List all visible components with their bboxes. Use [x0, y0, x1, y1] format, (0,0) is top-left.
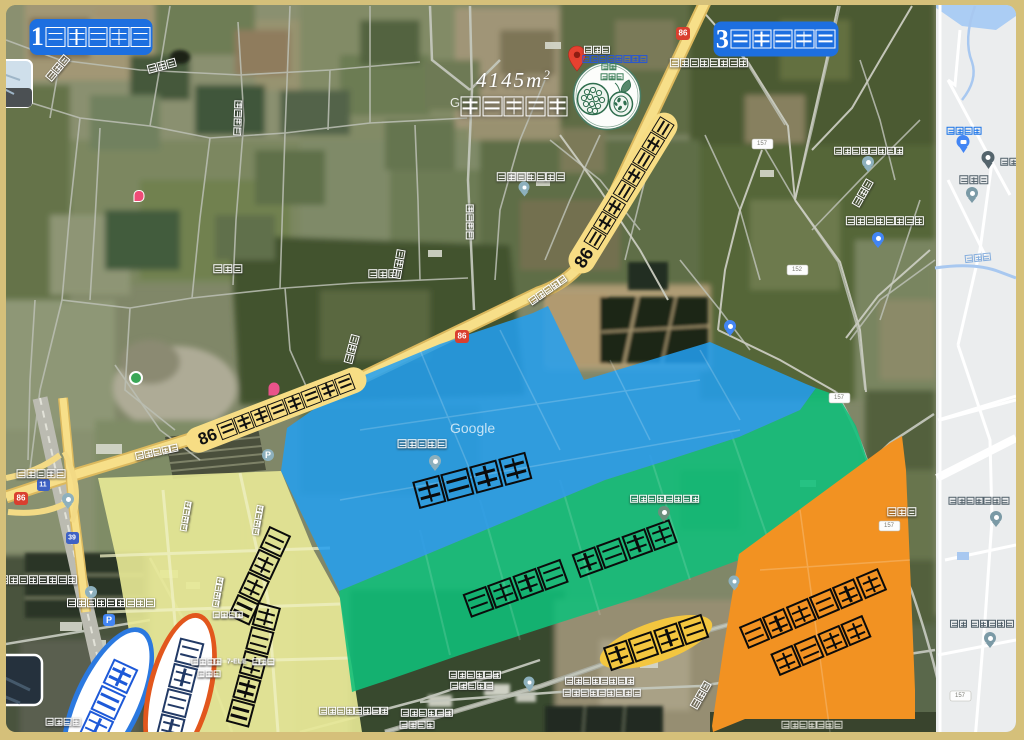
svg-text:Google: Google [450, 420, 495, 436]
